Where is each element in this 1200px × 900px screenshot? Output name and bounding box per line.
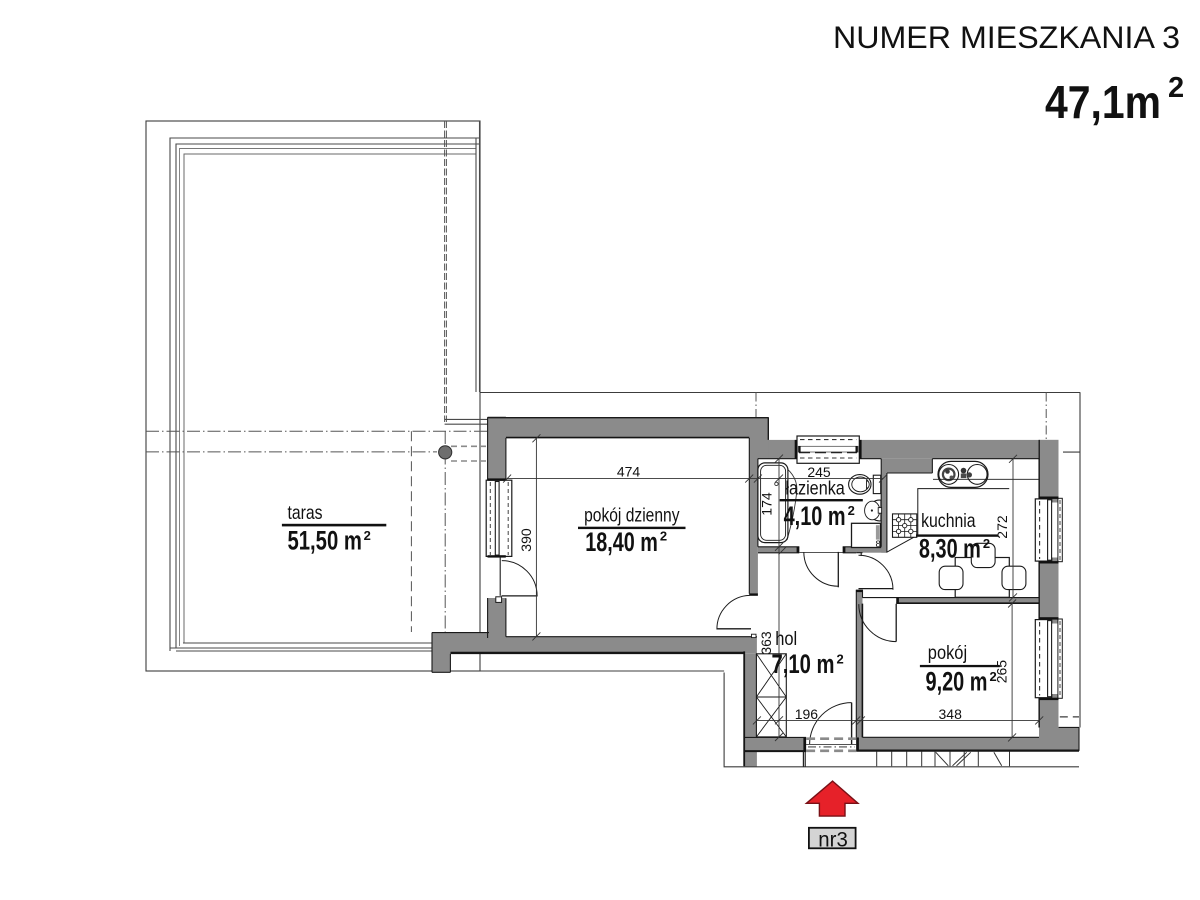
svg-text:2: 2 <box>364 528 371 543</box>
svg-text:8: 8 <box>876 539 881 550</box>
svg-text:2: 2 <box>837 651 844 666</box>
svg-text:4,10 m: 4,10 m <box>784 501 846 531</box>
svg-text:174: 174 <box>759 492 775 516</box>
svg-text:2: 2 <box>983 536 990 551</box>
svg-text:474: 474 <box>617 464 641 480</box>
svg-text:łazienka: łazienka <box>785 478 845 500</box>
svg-text:taras: taras <box>288 502 323 524</box>
svg-text:51,50 m: 51,50 m <box>288 525 362 555</box>
svg-text:9,20 m: 9,20 m <box>926 666 988 696</box>
svg-text:2: 2 <box>990 669 997 684</box>
svg-text:nr3: nr3 <box>818 829 848 852</box>
svg-text:18,40 m: 18,40 m <box>585 527 658 557</box>
svg-text:pokój dzienny: pokój dzienny <box>584 504 680 526</box>
svg-text:7,10 m: 7,10 m <box>772 649 835 679</box>
svg-text:NUMER MIESZKANIA 3: NUMER MIESZKANIA 3 <box>833 19 1180 55</box>
svg-text:kuchnia: kuchnia <box>921 510 976 532</box>
svg-text:348: 348 <box>939 706 963 722</box>
svg-text:390: 390 <box>518 528 534 552</box>
svg-text:hol: hol <box>775 628 797 650</box>
svg-text:pokój: pokój <box>928 642 967 664</box>
svg-text:196: 196 <box>795 706 819 722</box>
svg-text:8,30 m: 8,30 m <box>919 534 981 564</box>
svg-text:2: 2 <box>848 503 855 518</box>
svg-text:47,1m: 47,1m <box>1045 76 1161 128</box>
svg-text:2: 2 <box>660 529 667 544</box>
svg-text:2: 2 <box>1168 72 1184 104</box>
